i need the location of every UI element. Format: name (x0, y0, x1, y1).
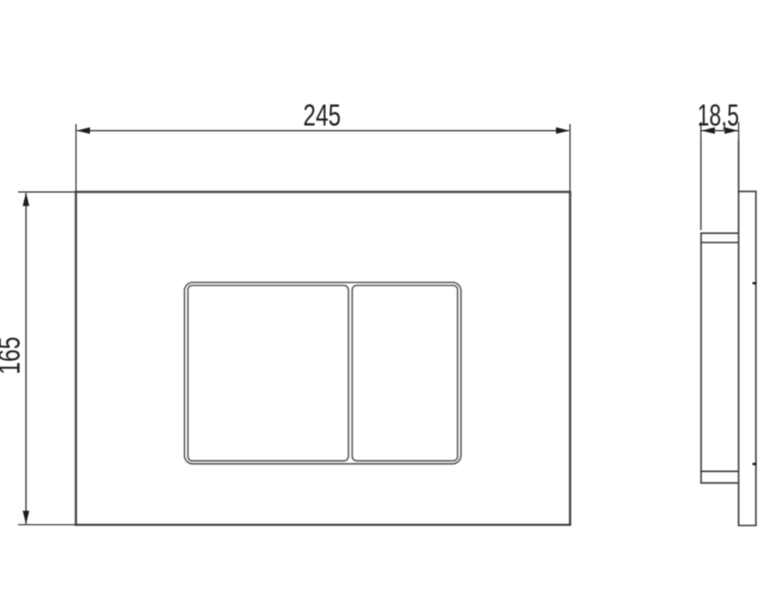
svg-text:165: 165 (0, 337, 27, 375)
svg-text:245: 245 (303, 97, 341, 132)
svg-text:18,5: 18,5 (697, 98, 739, 133)
